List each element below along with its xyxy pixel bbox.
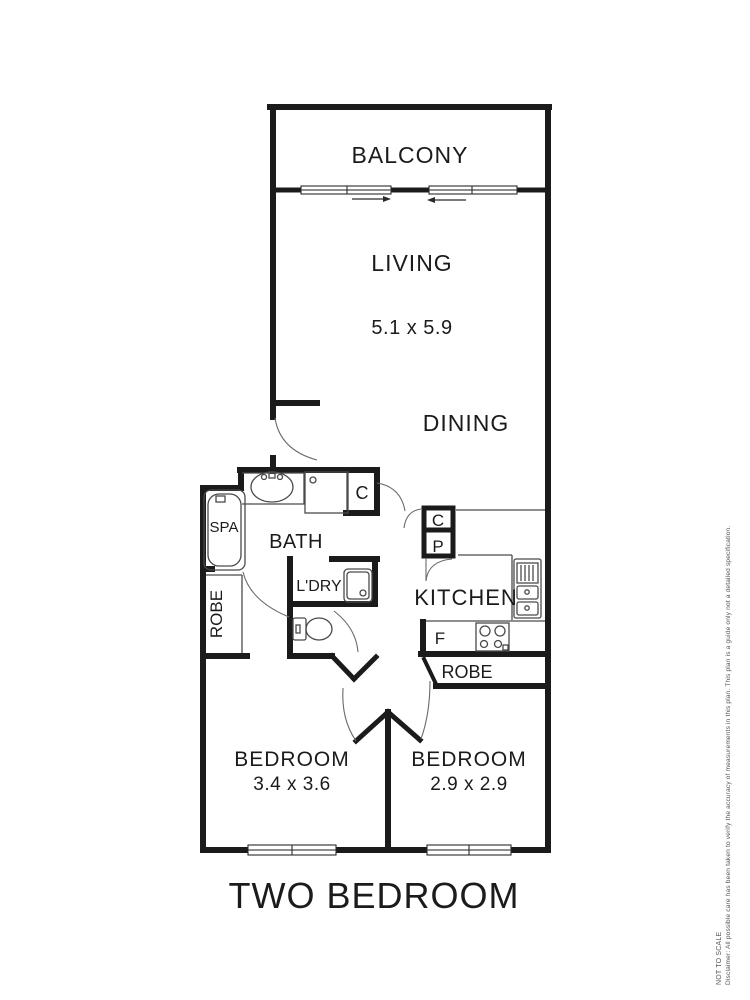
pantry-door-arc <box>426 559 452 581</box>
room-label-robe-bedroom2: ROBE <box>441 662 492 682</box>
slide-direction-arrows <box>352 196 466 203</box>
room-label-robe-left: ROBE <box>207 590 226 638</box>
room-dimensions-bedroom1: 3.4 x 3.6 <box>253 774 330 795</box>
laundry-tub <box>344 569 372 602</box>
cooktop <box>476 623 509 651</box>
room-label-dining: DINING <box>423 410 510 436</box>
bedroom2-door-arc <box>421 681 430 739</box>
label-fridge: F <box>435 629 445 648</box>
room-dimensions-living: 5.1 x 5.9 <box>371 317 452 339</box>
room-label-bath: BATH <box>269 531 323 553</box>
room-label-spa: SPA <box>210 519 239 536</box>
label-cupboard-bath: C <box>356 483 369 503</box>
room-label-bedroom1: BEDROOM <box>234 748 350 771</box>
toilet <box>293 618 332 640</box>
label-pantry: P <box>432 537 443 556</box>
room-label-kitchen: KITCHEN <box>414 585 518 610</box>
floor-plan-drawing: BALCONY LIVING 5.1 x 5.9 DINING SPA BATH… <box>0 0 750 1000</box>
bath-door-arc <box>243 572 289 617</box>
bath-cupboard-door-arc <box>377 483 405 511</box>
vanity-basin <box>242 472 304 504</box>
room-dimensions-bedroom2: 2.9 x 2.9 <box>430 774 507 795</box>
balcony-sliding-door-left <box>301 186 391 194</box>
disclaimer-text: Disclaimer: All possible care has been t… <box>725 526 732 985</box>
floor-plan-page: BALCONY LIVING 5.1 x 5.9 DINING SPA BATH… <box>0 0 750 1000</box>
wc-door-arc <box>334 611 358 652</box>
label-cupboard-hall: C <box>432 511 444 530</box>
bedroom1-window <box>248 845 336 855</box>
kitchen-sink <box>514 559 541 618</box>
hall-cupboard-door-arc <box>404 509 421 528</box>
room-label-balcony: BALCONY <box>352 142 469 168</box>
side-disclaimer: NOT TO SCALE Disclaimer: All possible ca… <box>716 526 732 985</box>
plan-title: TWO BEDROOM <box>229 875 520 916</box>
bedroom1-door-arc <box>343 688 356 741</box>
not-to-scale-note: NOT TO SCALE <box>716 932 723 985</box>
entry-door-arc <box>275 418 317 460</box>
room-label-bedroom2: BEDROOM <box>411 748 527 771</box>
room-label-living: LIVING <box>371 250 452 276</box>
room-label-laundry: L'DRY <box>296 578 342 595</box>
balcony-sliding-door-right <box>429 186 517 194</box>
bedroom2-window <box>427 845 511 855</box>
shower <box>305 472 348 513</box>
